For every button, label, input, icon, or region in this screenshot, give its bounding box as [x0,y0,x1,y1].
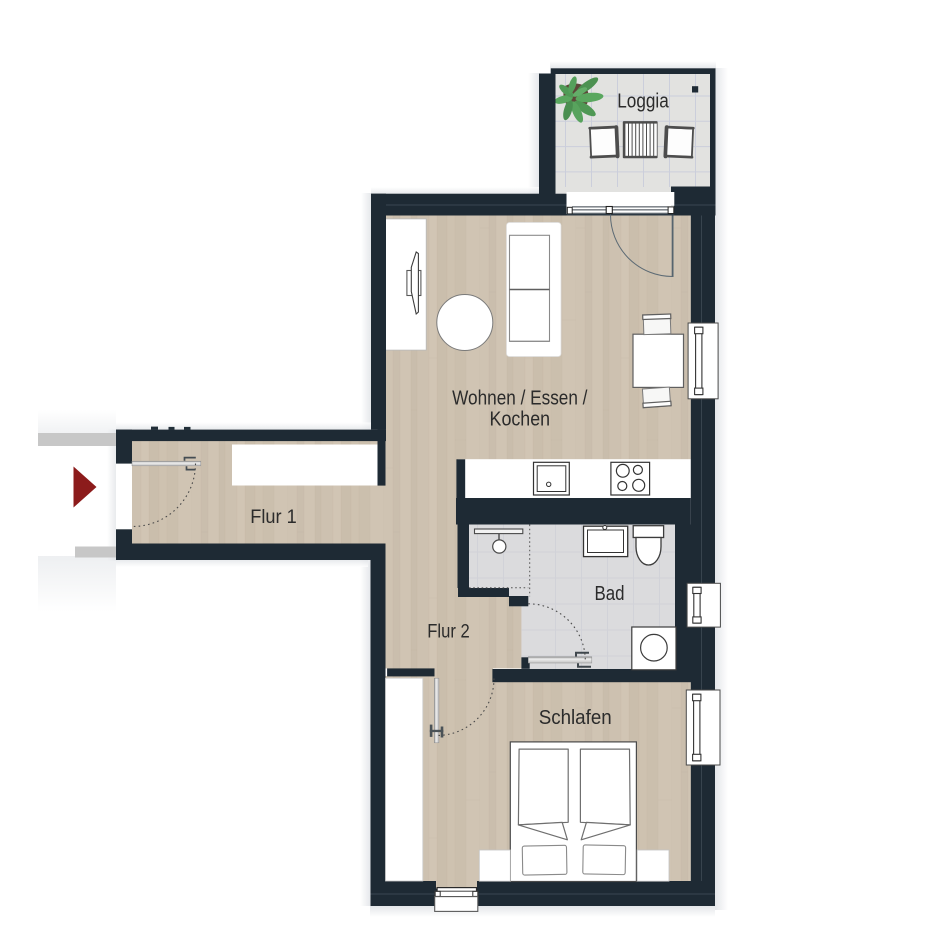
svg-text:Wohnen / Essen /: Wohnen / Essen / [452,387,588,409]
svg-text:Schlafen: Schlafen [539,707,612,729]
svg-text:Flur 1: Flur 1 [250,507,297,528]
svg-text:Kochen: Kochen [490,408,551,430]
svg-text:Bad: Bad [595,583,625,605]
svg-text:Loggia: Loggia [617,90,669,112]
svg-text:Flur 2: Flur 2 [427,622,470,643]
